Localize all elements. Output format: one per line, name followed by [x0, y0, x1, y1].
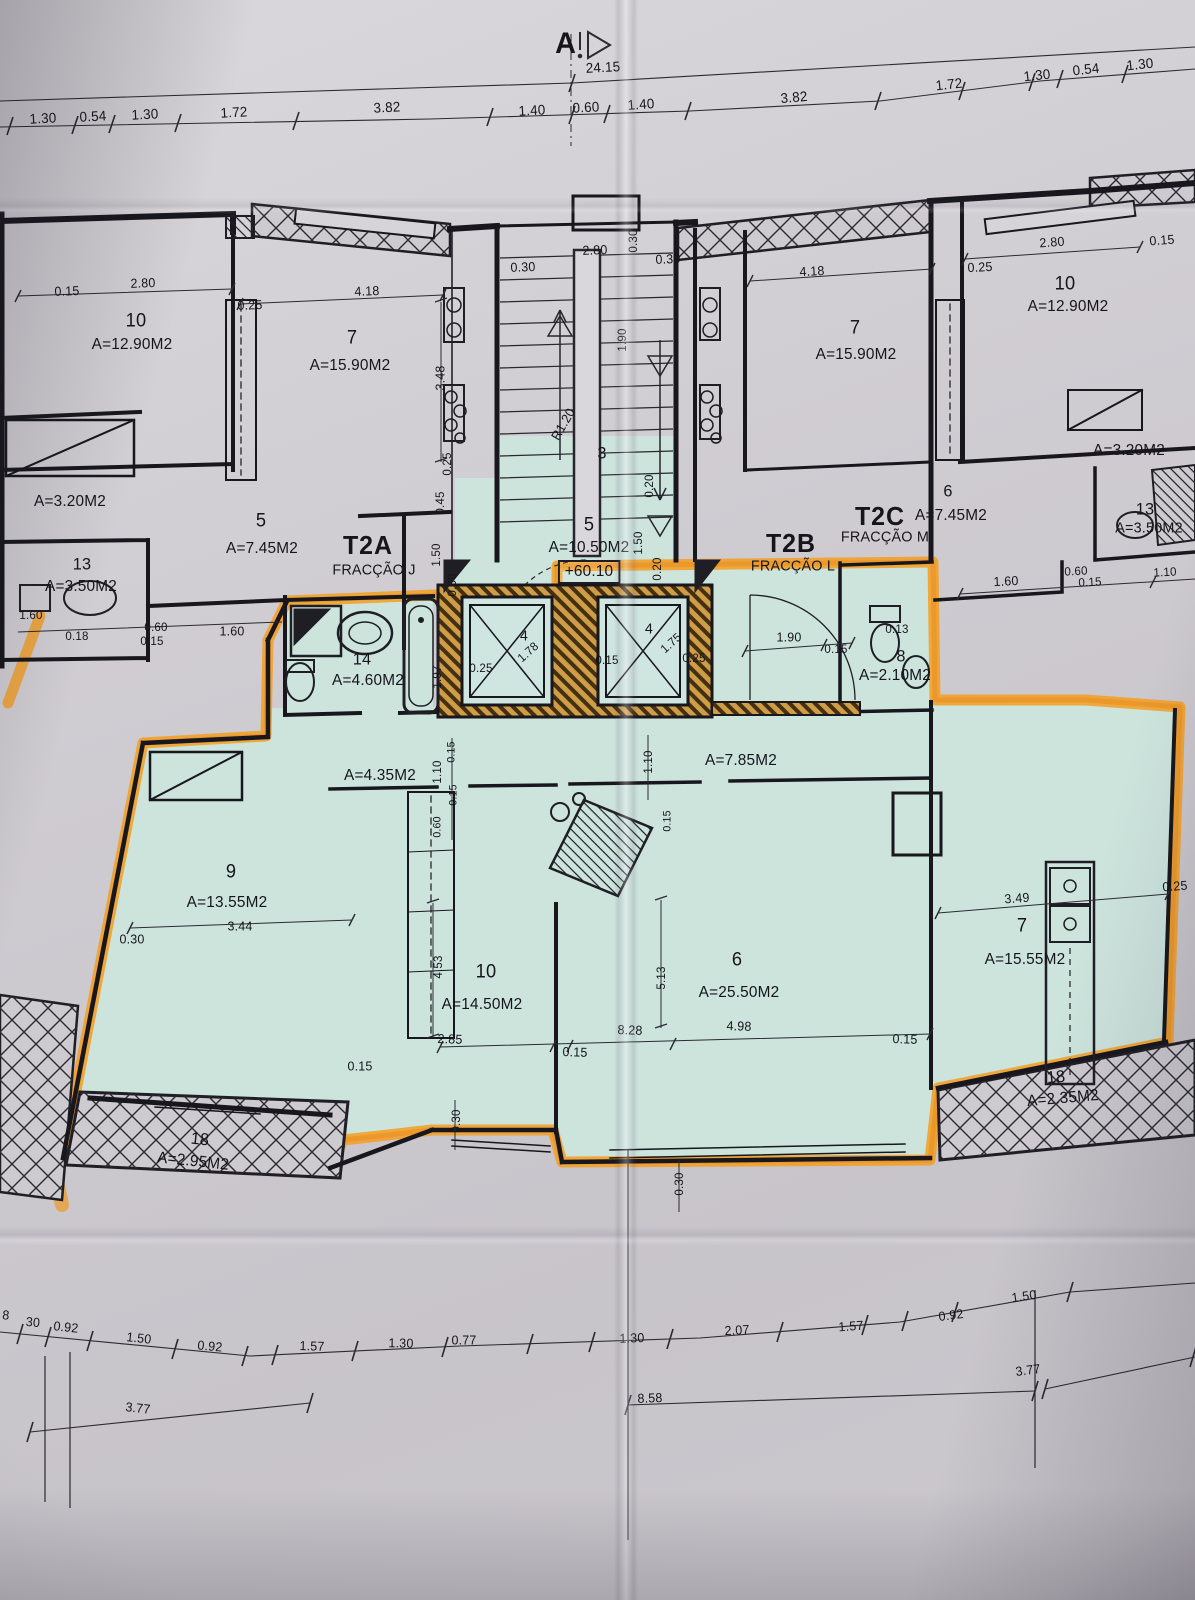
room-number-label: 7: [850, 319, 860, 338]
unit-code-label: T2C: [855, 503, 905, 529]
unit-code-label: T2B: [766, 530, 816, 556]
dimension-label: 0.25: [682, 652, 705, 664]
dimension-label: 0.30: [673, 1172, 685, 1195]
dimension-label: 0.15: [447, 741, 458, 762]
dimension-label: 1.60: [19, 609, 42, 621]
dimension-label: 0.60: [144, 621, 167, 633]
room-number-label: 7: [1017, 917, 1027, 936]
dimension-label: 0.15: [595, 654, 618, 666]
fraction-name-label: FRACÇÃO L: [751, 559, 835, 574]
dimension-label: 1.50: [126, 1330, 152, 1346]
dimension-label: 1.30: [388, 1336, 413, 1349]
room-area-label: A=15.90M2: [816, 347, 897, 363]
dimension-label: 0.25: [967, 260, 993, 274]
dimension-label: 0.30: [627, 229, 639, 252]
dimension-label: 30: [25, 1315, 40, 1329]
dimension-label: 0.18: [65, 630, 88, 642]
dimension-label: 3.82: [373, 99, 401, 114]
dimension-label: 8.28: [617, 1023, 643, 1037]
label-layer: A24.151.300.541.301.723.821.400.601.403.…: [0, 0, 1195, 1600]
dimension-label: 1.40: [518, 102, 546, 117]
room-area-label: A=4.60M2: [332, 673, 404, 689]
room-number-label: 14: [353, 651, 372, 668]
dimension-label: 3.77: [125, 1400, 151, 1416]
dimension-label: 1.90: [776, 631, 801, 644]
room-area-label: A=15.55M2: [985, 952, 1066, 968]
dimension-label: 1.72: [935, 76, 963, 93]
dimension-label: 0.92: [938, 1307, 964, 1323]
room-number-label: 3: [597, 445, 606, 462]
dimension-label: 0.15: [140, 635, 163, 647]
floorplan-photo: A24.151.300.541.301.723.821.400.601.403.…: [0, 0, 1195, 1600]
dimension-label: 0.54: [1072, 61, 1100, 78]
room-number-label: 10: [476, 963, 497, 982]
dimension-label: 0.15: [54, 284, 80, 298]
dimension-label: 8.58: [637, 1391, 663, 1405]
room-area-label: A=4.35M2: [344, 768, 416, 784]
dimension-label: 0.15: [347, 1060, 372, 1073]
dimension-label: 0.60: [572, 99, 600, 114]
room-number-label: 8: [896, 648, 905, 665]
room-number-label: 13: [73, 556, 92, 573]
dimension-label: 0.30: [450, 1109, 462, 1132]
dimension-label: 1.30: [131, 106, 159, 121]
dimension-label: 1.50: [632, 531, 644, 554]
dimension-label: 2.80: [130, 276, 156, 290]
dimension-label: 0.54: [79, 108, 107, 123]
dimension-label: 0.25: [469, 662, 492, 674]
room-number-label: 9: [226, 863, 236, 882]
room-area-label: A=12.90M2: [1028, 299, 1109, 315]
dimension-label: 0.30: [119, 933, 144, 946]
dimension-label: 0.15: [1149, 233, 1175, 248]
dimension-label: 1.10: [642, 750, 654, 773]
room-number-label: 18: [1046, 1068, 1066, 1087]
room-area-label: A=12.90M2: [92, 337, 173, 353]
room-number-label: 6: [732, 951, 742, 970]
room-number-label: 18: [190, 1130, 210, 1149]
elevation-label: +60.10: [558, 560, 620, 584]
dimension-label: 3.82: [780, 89, 808, 105]
dimension-label: 3.44: [227, 920, 252, 933]
dimension-label: 8: [2, 1308, 10, 1322]
room-area-label: A=3.20M2: [34, 494, 106, 510]
unit-code-label: T2A: [343, 532, 393, 558]
dimension-label: 1.75: [658, 631, 683, 655]
dimension-label: 0.92: [53, 1319, 79, 1335]
room-number-label: 5: [584, 516, 594, 535]
dimension-label: 1.57: [838, 1319, 864, 1334]
fraction-name-label: FRACÇÃO J: [332, 563, 415, 578]
room-number-label: 10: [126, 312, 147, 331]
dimension-label: 0.15: [449, 784, 460, 805]
dimension-label: 0.60: [433, 816, 444, 837]
dimension-label: 1.60: [993, 574, 1019, 588]
dimension-label: 0.25: [237, 298, 263, 312]
dimension-label: 2.07: [724, 1323, 750, 1337]
dimension-label: 3.77: [1015, 1362, 1041, 1378]
dimension-label: 0.15: [1078, 575, 1102, 588]
dimension-label: 3.48: [434, 365, 447, 390]
dimension-label: 0.77: [451, 1334, 476, 1347]
section-marker-label: A: [555, 29, 577, 59]
dimension-label: 3.49: [1004, 891, 1030, 906]
dimension-label: 0.20: [643, 474, 655, 497]
dimension-label: R1.20: [549, 406, 577, 442]
dimension-label: 0.13: [885, 623, 908, 635]
room-area-label: A=2.35M2: [1026, 1088, 1099, 1110]
dimension-label: 0.15: [824, 643, 847, 655]
dimension-label: 1.30: [619, 1331, 645, 1345]
room-area-label: A=7.85M2: [705, 753, 777, 769]
room-area-label: A=7.45M2: [915, 508, 987, 524]
dimension-label: 0.30: [446, 573, 458, 596]
room-area-label: A=13.55M2: [187, 895, 268, 911]
dimension-label: 0.15: [562, 1045, 588, 1059]
room-number-label: 10: [1055, 275, 1076, 294]
dimension-label: 5.13: [655, 966, 667, 989]
room-area-label: A=14.50M2: [442, 997, 523, 1013]
dimension-label: 1.50: [1011, 1288, 1038, 1304]
room-area-label: A=3.50M2: [1115, 521, 1183, 536]
dimension-label: 2.80: [582, 243, 608, 257]
room-number-label: 13: [1136, 501, 1155, 518]
dimension-label: 1.72: [220, 104, 248, 119]
room-area-label: A=2.95M2: [156, 1150, 229, 1173]
dimension-label: 2.80: [1039, 235, 1065, 250]
dimension-label: 1.40: [627, 96, 655, 112]
room-number-label: 5: [256, 512, 266, 531]
dimension-label: 0.25: [1162, 879, 1188, 894]
dimension-label: 2.85: [437, 1032, 463, 1046]
dimension-label: 1.10: [1153, 565, 1177, 578]
dimension-label: 1.50: [430, 543, 442, 566]
dimension-label: 0.30: [655, 252, 681, 266]
dimension-label: 0.25: [441, 452, 453, 475]
dimension-label: 1.97: [431, 665, 443, 688]
fraction-name-label: FRACÇÃO M: [841, 530, 929, 545]
room-area-label: A=3.50M2: [45, 579, 117, 595]
dimension-label: 0.92: [197, 1338, 223, 1353]
dimension-label: 1.10: [431, 760, 443, 783]
dimension-label: 1.57: [299, 1339, 325, 1353]
dimension-label: 4.18: [799, 264, 825, 278]
room-number-label: 4: [520, 629, 528, 644]
room-number-label: 4: [645, 622, 653, 637]
room-area-label: A=3.20M2: [1093, 443, 1165, 459]
dimension-label: 1.30: [1023, 67, 1051, 84]
room-area-label: A=25.50M2: [699, 985, 780, 1001]
dimension-label: 0.15: [892, 1032, 918, 1046]
room-number-label: 7: [347, 329, 357, 348]
dimension-label: 1.60: [219, 625, 244, 638]
room-area-label: A=15.90M2: [310, 358, 391, 374]
room-area-label: A=10.50M2: [549, 540, 630, 556]
dimension-label: 1.30: [1126, 56, 1154, 73]
dimension-label: 1.90: [616, 328, 628, 351]
dimension-label: 4.18: [354, 284, 380, 298]
dimension-label: 4.53: [432, 955, 444, 978]
room-area-label: A=7.45M2: [226, 541, 298, 557]
dimension-label: 1.30: [29, 110, 57, 125]
dimension-label: 24.15: [585, 59, 620, 75]
dimension-label: 0.30: [510, 260, 536, 274]
dimension-label: 0.45: [434, 491, 446, 514]
room-number-label: 6: [943, 483, 952, 500]
dimension-label: 0.15: [663, 810, 674, 831]
dimension-label: 4.98: [726, 1019, 752, 1033]
dimension-label: 0.20: [651, 557, 663, 580]
room-area-label: A=2.10M2: [859, 668, 931, 684]
